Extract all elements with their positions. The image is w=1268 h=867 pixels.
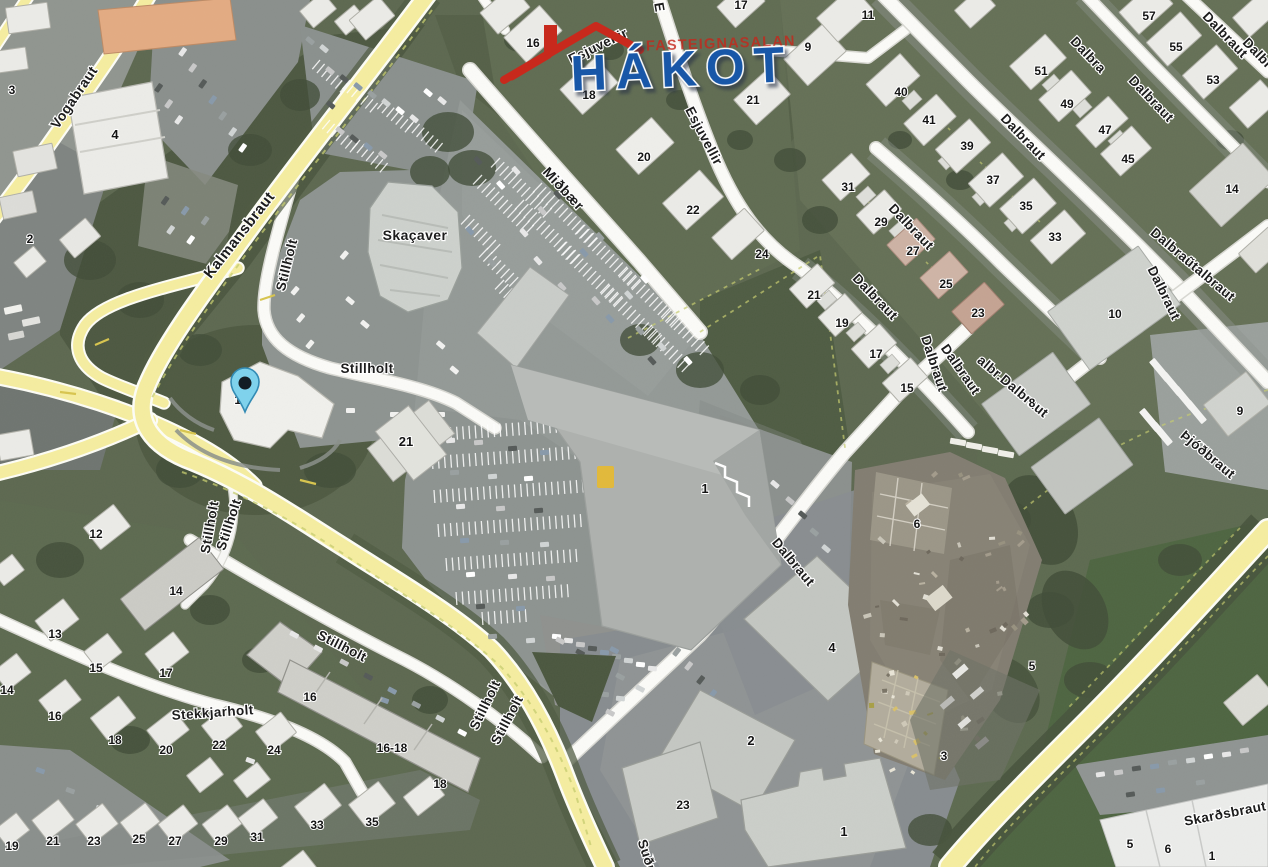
svg-text:16: 16 (303, 690, 317, 704)
svg-text:17: 17 (869, 347, 883, 361)
svg-text:14: 14 (0, 683, 14, 697)
svg-text:41: 41 (922, 113, 936, 127)
svg-text:6: 6 (914, 517, 921, 531)
svg-text:29: 29 (874, 215, 888, 229)
svg-text:22: 22 (212, 738, 226, 752)
svg-text:14: 14 (169, 584, 183, 598)
svg-text:13: 13 (48, 627, 62, 641)
svg-text:37: 37 (986, 173, 1000, 187)
svg-text:1: 1 (840, 824, 847, 839)
svg-text:12: 12 (89, 527, 103, 541)
svg-text:35: 35 (365, 815, 379, 829)
svg-text:14: 14 (1225, 182, 1239, 196)
svg-text:5: 5 (1029, 659, 1036, 673)
svg-text:35: 35 (1019, 199, 1033, 213)
svg-text:18: 18 (433, 777, 447, 791)
svg-text:20: 20 (637, 150, 651, 164)
svg-text:33: 33 (310, 818, 324, 832)
svg-text:19: 19 (835, 316, 849, 330)
svg-text:23: 23 (87, 834, 101, 848)
svg-text:53: 53 (1206, 73, 1220, 87)
svg-text:11: 11 (862, 8, 875, 22)
svg-text:40: 40 (894, 85, 908, 99)
svg-text:33: 33 (1048, 230, 1062, 244)
svg-text:3: 3 (9, 83, 16, 97)
svg-text:6: 6 (1165, 842, 1172, 856)
svg-text:21: 21 (807, 288, 821, 302)
svg-text:21: 21 (46, 834, 60, 848)
svg-text:19: 19 (5, 839, 19, 853)
svg-text:16: 16 (48, 709, 62, 723)
svg-text:25: 25 (132, 832, 146, 846)
svg-text:10: 10 (1108, 307, 1122, 321)
svg-text:20: 20 (159, 743, 173, 757)
svg-text:Stillholt: Stillholt (340, 361, 393, 376)
svg-text:21: 21 (399, 434, 413, 449)
svg-text:22: 22 (686, 203, 700, 217)
svg-text:39: 39 (960, 139, 974, 153)
svg-text:HÁKOT: HÁKOT (569, 36, 794, 102)
svg-text:15: 15 (900, 381, 914, 395)
svg-text:3: 3 (941, 749, 948, 763)
svg-text:9: 9 (805, 40, 812, 54)
svg-text:1: 1 (1209, 849, 1216, 863)
svg-text:31: 31 (250, 830, 264, 844)
svg-text:47: 47 (1098, 123, 1112, 137)
svg-text:49: 49 (1060, 97, 1074, 111)
svg-text:9: 9 (1237, 404, 1244, 418)
svg-text:5: 5 (1127, 837, 1134, 851)
svg-text:27: 27 (906, 244, 920, 258)
svg-text:16-18: 16-18 (377, 741, 408, 755)
svg-text:16: 16 (526, 36, 540, 50)
svg-text:15: 15 (89, 661, 103, 675)
svg-text:24: 24 (755, 247, 769, 261)
svg-text:51: 51 (1034, 64, 1048, 78)
svg-text:2: 2 (27, 232, 34, 246)
svg-text:31: 31 (841, 180, 855, 194)
svg-text:21: 21 (746, 93, 760, 107)
svg-text:29: 29 (214, 834, 228, 848)
svg-text:18: 18 (108, 733, 122, 747)
svg-text:25: 25 (939, 277, 953, 291)
svg-text:27: 27 (168, 834, 182, 848)
svg-text:2: 2 (747, 733, 754, 748)
svg-text:4: 4 (111, 127, 119, 142)
svg-text:55: 55 (1169, 40, 1183, 54)
svg-text:1: 1 (701, 481, 708, 496)
svg-text:23: 23 (971, 306, 985, 320)
svg-text:17: 17 (734, 0, 748, 12)
svg-text:17: 17 (159, 666, 173, 680)
svg-text:24: 24 (267, 743, 281, 757)
svg-text:4: 4 (828, 640, 836, 655)
svg-text:8: 8 (1029, 396, 1036, 410)
svg-text:45: 45 (1121, 152, 1135, 166)
svg-text:57: 57 (1142, 9, 1156, 23)
svg-text:Skaçaver: Skaçaver (383, 227, 448, 243)
svg-text:23: 23 (676, 798, 690, 812)
